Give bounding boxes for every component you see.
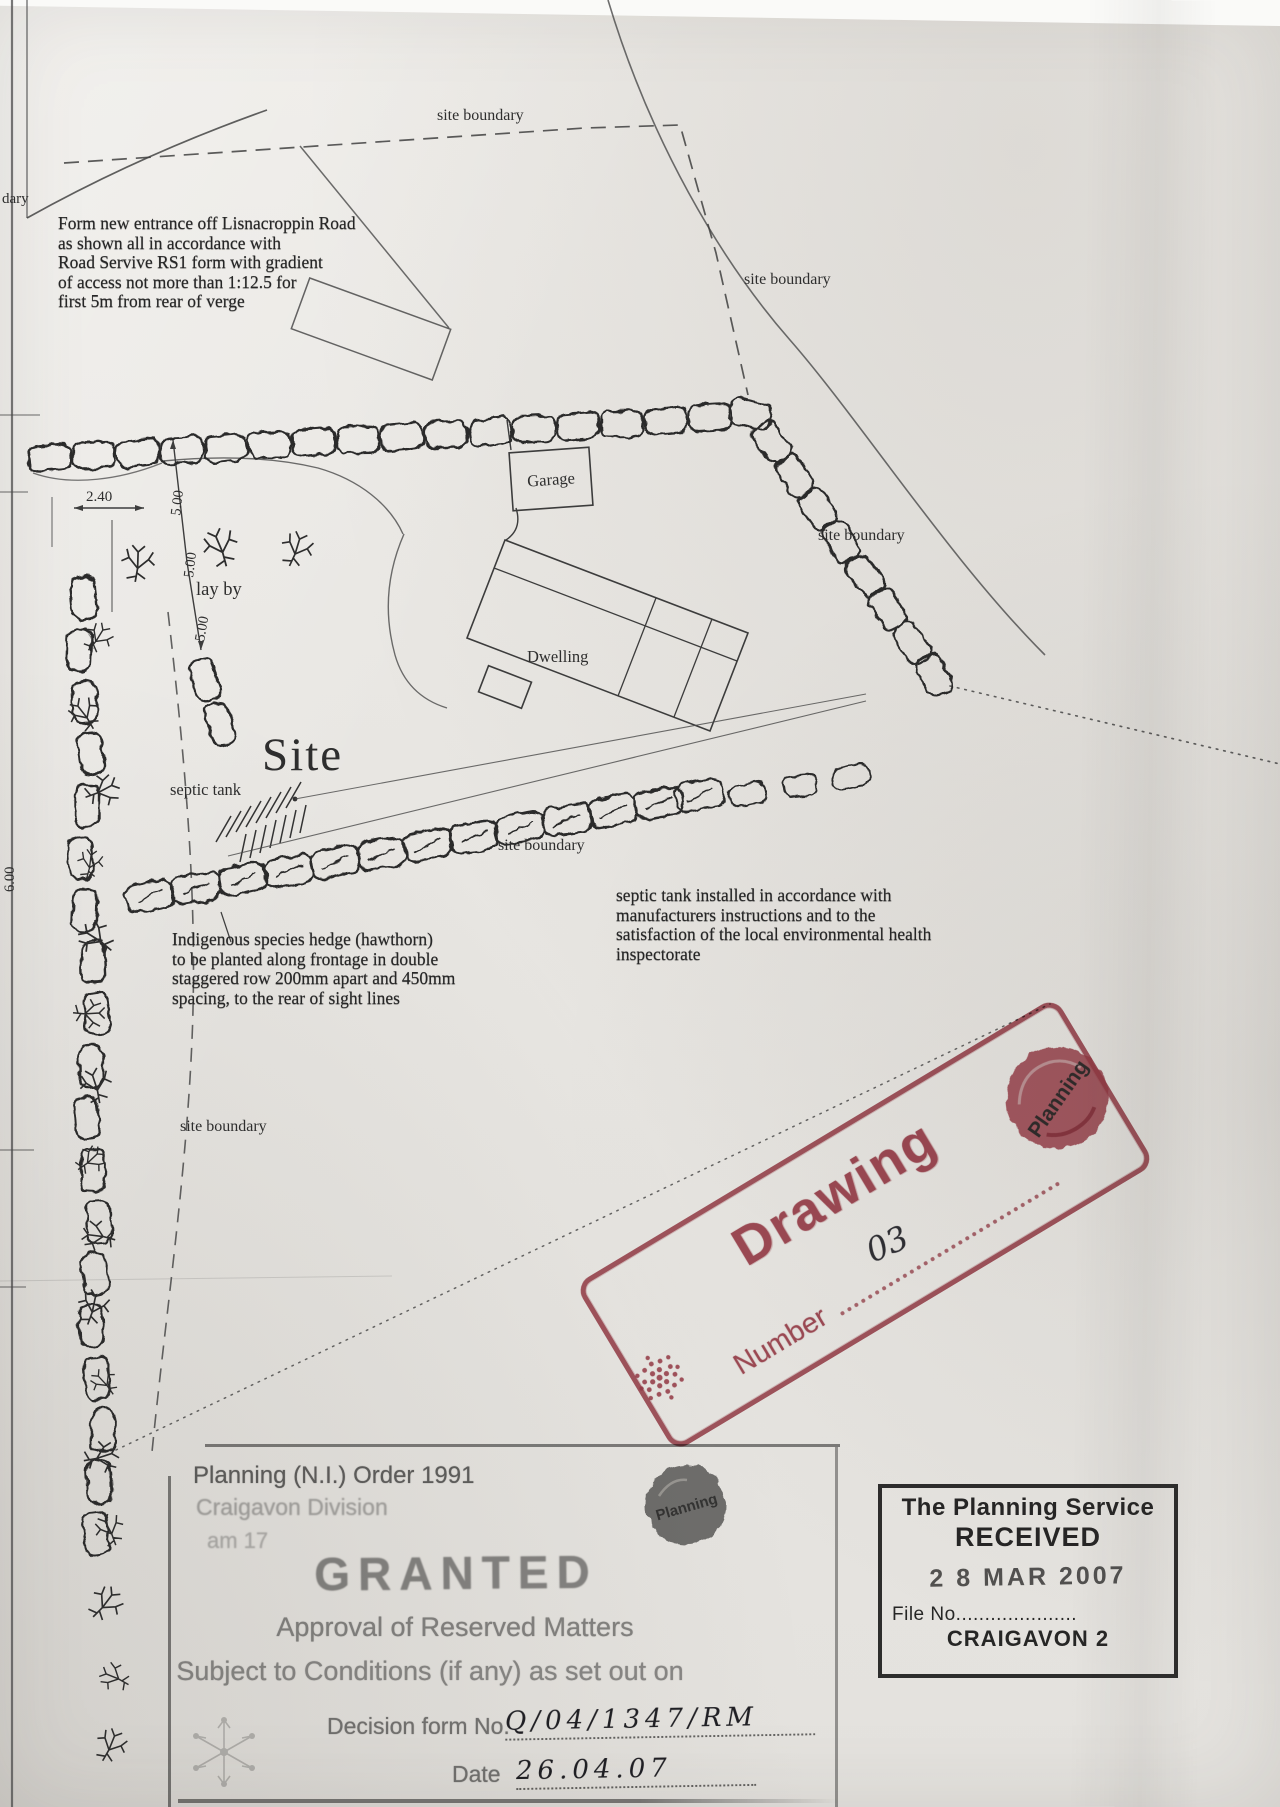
hedge-bubble [448, 819, 500, 854]
hedge-bubble [116, 438, 161, 469]
scanned-site-plan: 2.40 5.00 5.00 5.00 6.00 Garage [0, 0, 1280, 1807]
dimension-2-40: 2.40 [74, 489, 144, 511]
note-line: staggered row 200mm apart and 450mm [172, 969, 455, 989]
hedge-bubble [866, 584, 911, 633]
hedge-bubble [587, 793, 639, 830]
field-boundary-line [608, 0, 1045, 655]
hedge-bubble [782, 774, 818, 799]
tree-symbol [86, 1364, 124, 1403]
hedge-bubble [80, 940, 106, 983]
hedge-bubble [356, 837, 407, 871]
hedge-note: Indigenous species hedge (hawthorn) to b… [172, 930, 455, 1008]
date-value: 26.04.07 [516, 1752, 757, 1790]
received-date: 2 8 MAR 2007 [882, 1560, 1174, 1594]
hedge-bubble [79, 1045, 104, 1087]
note-line: Road Servive RS1 form with gradient [58, 253, 356, 273]
hedge-bubble [73, 441, 116, 468]
hedge-bubble [912, 650, 956, 699]
hedge-bubble [337, 427, 379, 454]
hedge-bubble [80, 1149, 105, 1192]
hedge-bubble [728, 780, 768, 809]
received-org: The Planning Service [882, 1494, 1174, 1522]
dim-500-label: 5.00 [181, 551, 200, 578]
tree-symbol [63, 692, 106, 736]
hedge-bubble [187, 656, 224, 704]
granted-box-top [205, 1444, 840, 1447]
hedge-bubble [91, 1409, 116, 1451]
dim-240-label: 2.40 [86, 489, 112, 505]
site-boundary-label-left: site boundary [180, 1118, 267, 1135]
driveway-upper-edge [163, 458, 403, 534]
edge-leader-lines [0, 415, 52, 1287]
dim-600-label: 6.00 [2, 867, 18, 892]
road-edge-curve [27, 110, 267, 218]
note-line: as shown all in accordance with [58, 234, 356, 254]
septic-tank-label: septic tank [170, 780, 242, 799]
hedge-bubble [556, 411, 600, 441]
dimension-5m-chain: 5.00 5.00 5.00 [168, 440, 212, 650]
hedge-bubble [124, 878, 176, 915]
garage-building: Garage [509, 447, 593, 510]
tree-symbol [91, 1510, 129, 1550]
granted-box-bottom [178, 1799, 838, 1803]
note-line: satisfaction of the local environmental … [616, 925, 931, 945]
planning-round-logo-icon: Planning [641, 1460, 731, 1555]
hedge-bubble [217, 860, 270, 897]
tree-symbol [95, 1658, 135, 1697]
tree-symbols [63, 525, 318, 1768]
hedge-bubble [644, 406, 688, 436]
hedge-bubble [28, 443, 72, 473]
garage-dwelling-connector [506, 508, 518, 540]
dwelling-building [467, 540, 748, 731]
driveway-lower-edge [388, 534, 447, 708]
hedge-bubble [402, 827, 454, 864]
hedge-bubble [73, 1096, 101, 1140]
granted-box-right [835, 1447, 838, 1807]
hedge-bubble [601, 411, 643, 438]
hedge-right-row [749, 417, 956, 699]
dim-500-label: 5.00 [168, 489, 187, 516]
hedge-bubble [513, 415, 556, 442]
note-line: spacing, to the rear of sight lines [172, 989, 455, 1009]
file-no-label: File No..................... [882, 1604, 1174, 1626]
file-no-value: CRAIGAVON 2 [882, 1626, 1174, 1652]
site-boundary-label-middle: site boundary [498, 837, 585, 854]
hedge-bubble [308, 843, 361, 881]
note-line: manufacturers instructions and to the [616, 906, 931, 926]
site-boundary-dotted-right [950, 686, 1280, 764]
hedge-bubble [380, 422, 424, 452]
tree-symbol [275, 527, 319, 572]
hedge-bubble [83, 1356, 111, 1400]
hedge-bubble [170, 871, 221, 905]
hedge-bubble [249, 431, 292, 458]
date-label: Date [452, 1761, 501, 1788]
conditions-line: Subject to Conditions (if any) as set ou… [175, 1656, 685, 1687]
dwelling-label: Dwelling [527, 647, 588, 666]
hedge-bubble [468, 417, 513, 448]
granted-word: GRANTED [296, 1545, 616, 1602]
tree-symbol [80, 770, 124, 812]
tree-symbol [118, 543, 157, 585]
hedge-bubble [424, 420, 467, 448]
tree-symbol [79, 1217, 119, 1255]
tree-symbol [81, 1580, 128, 1627]
paper-crease-line [0, 1276, 392, 1281]
hedge-bubble [773, 451, 817, 500]
hedge-bubble [842, 551, 888, 600]
site-boundary-dashed-left [152, 612, 193, 1452]
septic-note: septic tank installed in accordance with… [616, 886, 931, 964]
tree-symbol [89, 1724, 132, 1768]
hedge-bubble [202, 700, 238, 747]
division-line: Craigavon Division [196, 1494, 388, 1521]
garage-label: Garage [527, 468, 576, 490]
hedge-bubble [749, 417, 795, 466]
hedge-bubble [70, 576, 98, 620]
planning-crystal-icon [186, 1706, 262, 1803]
hedge-bubble [66, 629, 91, 672]
site-boundary-label-top: site boundary [437, 107, 524, 124]
note-line: inspectorate [616, 945, 931, 965]
layby-label: lay by [196, 580, 242, 600]
received-word: RECEIVED [882, 1522, 1174, 1553]
note-line: Indigenous species hedge (hawthorn) [172, 930, 455, 950]
received-stamp: The Planning Service RECEIVED 2 8 MAR 20… [878, 1484, 1178, 1678]
site-label: Site [262, 729, 343, 781]
entrance-note: Form new entrance off Lisnacroppin Road … [58, 214, 356, 312]
hedge-bubble [292, 427, 336, 457]
dim-500-label: 5.00 [192, 615, 212, 643]
site-boundary-label-right: site boundary [818, 527, 905, 544]
hedge-left-column [66, 576, 238, 1556]
site-boundary-label-upper-right: site boundary [744, 271, 831, 288]
hedge-bubble [541, 803, 592, 837]
order-line: Planning (N.I.) Order 1991 [193, 1462, 474, 1490]
hedge-bubble [831, 763, 870, 792]
tree-symbol [78, 618, 119, 659]
team-line: am 17 [207, 1528, 268, 1554]
decision-form-value: Q/04/1347/RM [505, 1701, 816, 1740]
decision-form-label: Decision form No. [327, 1713, 510, 1740]
granted-box-left [168, 1476, 171, 1807]
note-line: to be planted along frontage in double [172, 950, 455, 970]
hedge-bubble [688, 404, 731, 432]
hedge-bubble [80, 1251, 111, 1297]
tree-symbol [72, 998, 106, 1030]
site-boundary-label-cut: dary [2, 191, 29, 207]
hedge-top-row [28, 396, 774, 472]
hedge-bubble [726, 396, 773, 431]
hedge-bubble [263, 853, 315, 888]
note-line: of access not more than 1:12.5 for [58, 273, 356, 293]
note-line: septic tank installed in accordance with [616, 886, 931, 906]
note-line: first 5m from rear of verge [58, 292, 356, 312]
tree-symbol [77, 1066, 115, 1106]
note-line: Form new entrance off Lisnacroppin Road [58, 214, 356, 234]
hedge-bubble [889, 618, 935, 667]
hedge-bubble [76, 731, 107, 777]
tree-symbol [199, 525, 243, 571]
approval-line: Approval of Reserved Matters [255, 1612, 655, 1643]
